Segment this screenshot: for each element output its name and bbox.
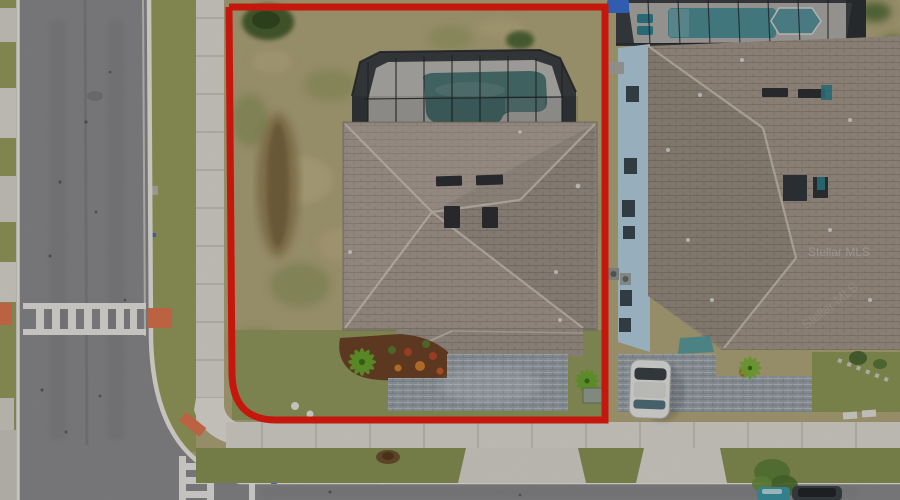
- aerial-photo-canvas: Stellar MLS Stellar MLS: [0, 0, 900, 500]
- aerial-photo: Stellar MLS Stellar MLS: [0, 0, 900, 500]
- photo-grain-overlay: [0, 0, 900, 500]
